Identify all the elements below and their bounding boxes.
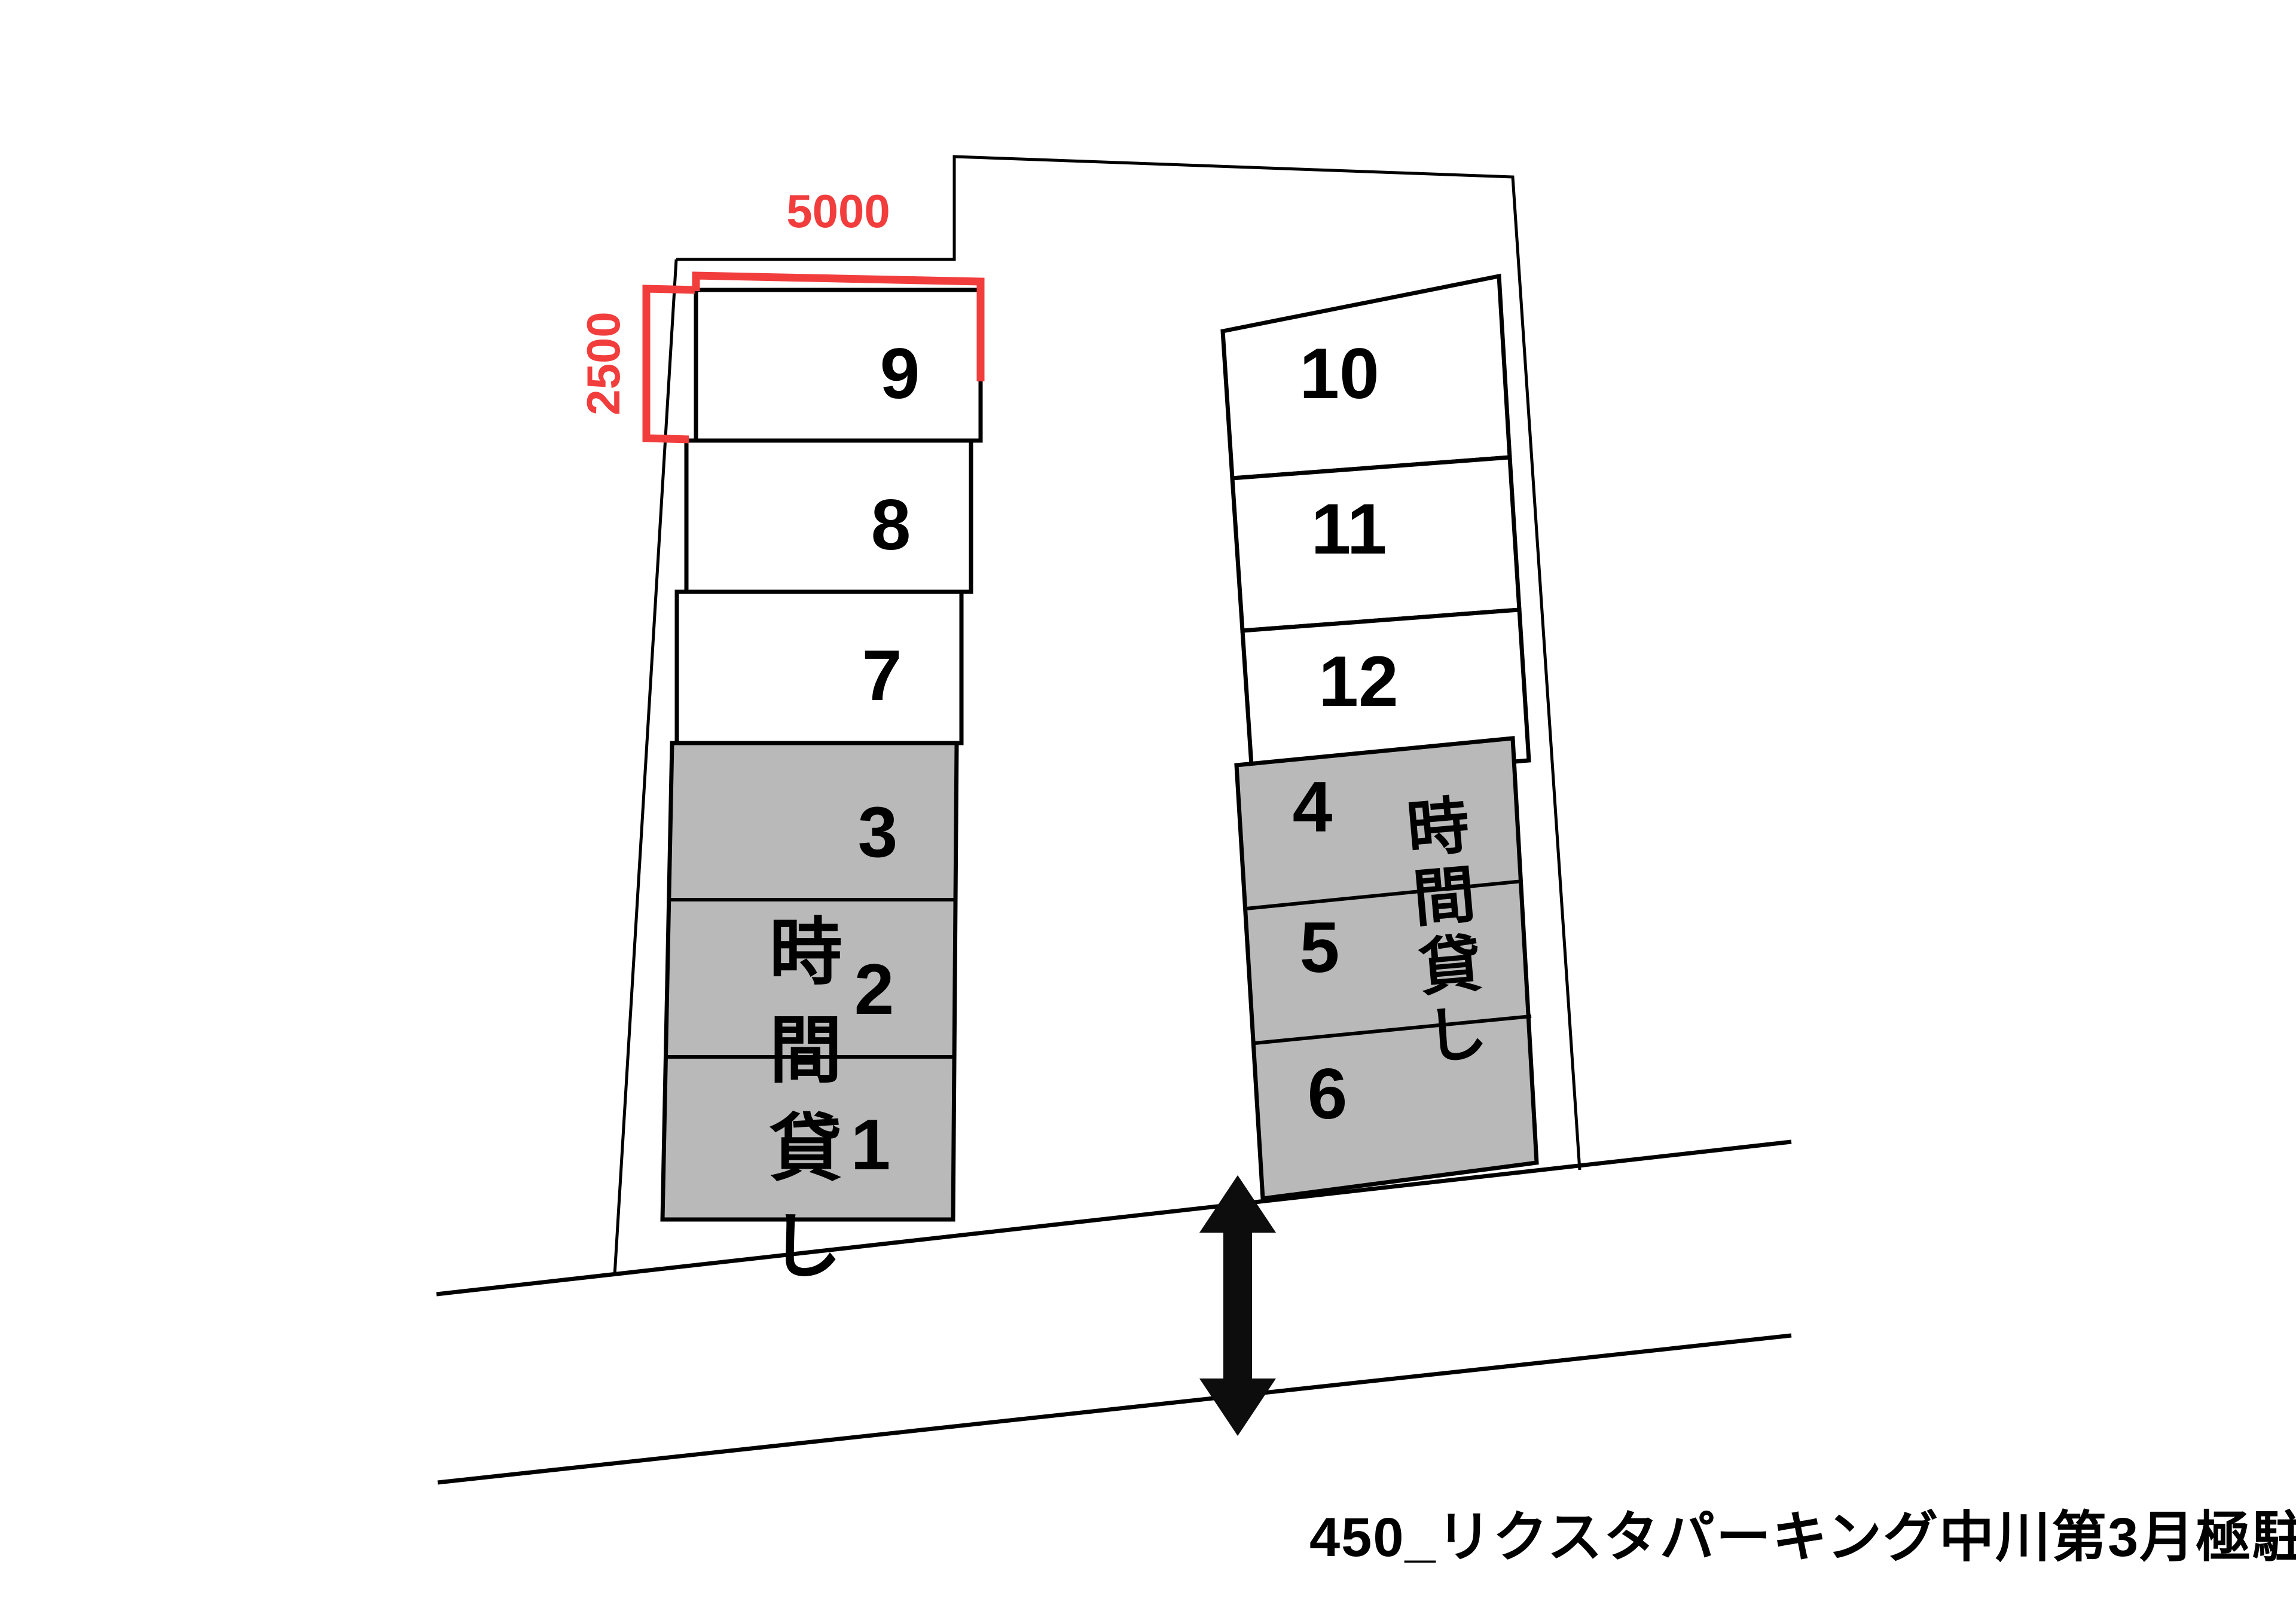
stall-5-number: 5 bbox=[1300, 912, 1340, 983]
stall-1-number: 1 bbox=[851, 1109, 891, 1181]
stall-10-number: 10 bbox=[1299, 338, 1379, 409]
road-edge-lower bbox=[438, 1335, 1791, 1483]
stall-6-number: 6 bbox=[1308, 1058, 1348, 1130]
stall-9-number: 9 bbox=[880, 338, 920, 409]
road-edge-upper bbox=[436, 1142, 1791, 1294]
parking-lot-map: 5000 2500 9 8 7 3 2 1 10 11 12 4 5 6 時間貸… bbox=[0, 0, 2296, 1623]
stall-12-number: 12 bbox=[1318, 646, 1398, 717]
stall-8-number: 8 bbox=[871, 489, 911, 561]
stall-7-outline bbox=[677, 592, 961, 743]
stall-4-number: 4 bbox=[1293, 771, 1333, 843]
stall-3-number: 3 bbox=[858, 796, 898, 868]
hourly-block-right bbox=[1236, 738, 1537, 1199]
dimension-width-label: 5000 bbox=[786, 185, 890, 237]
stall-8-outline bbox=[686, 441, 971, 592]
parking-map-drawing: 5000 2500 bbox=[0, 0, 2296, 1623]
stall-11-number: 11 bbox=[1311, 493, 1387, 565]
stall-7-number: 7 bbox=[862, 640, 902, 711]
hourly-rental-label-left: 時間貸し bbox=[763, 913, 836, 1306]
dimension-height-label: 2500 bbox=[577, 311, 630, 415]
stall-9-outline bbox=[696, 290, 981, 441]
stall-2-number: 2 bbox=[854, 953, 894, 1025]
map-caption: 450_リクスタパーキング中川第3月極駐車場 bbox=[1309, 1506, 2296, 1570]
